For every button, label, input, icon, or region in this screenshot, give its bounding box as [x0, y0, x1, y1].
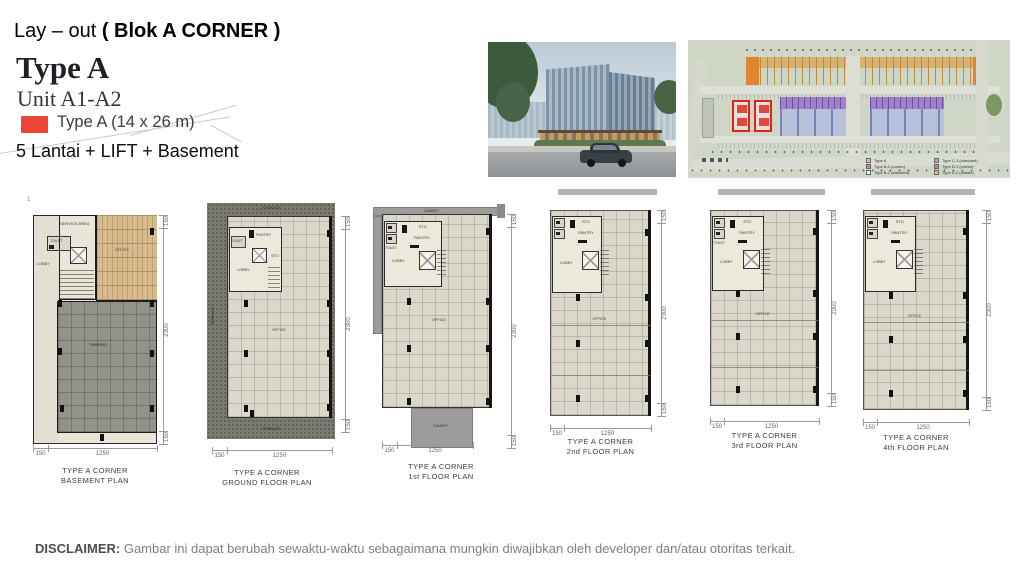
- dimension-label: 150: [661, 202, 669, 230]
- site-legend-chip: [934, 158, 939, 163]
- dimension-label: 150: [661, 395, 669, 423]
- column-marker: [963, 336, 967, 343]
- site-legend-label: Type C-1 (standard): [942, 158, 978, 163]
- column-marker: [244, 405, 248, 412]
- dimension-tick: [651, 425, 652, 432]
- column-marker: [250, 410, 254, 417]
- site-legend-chip: [866, 158, 871, 163]
- column-marker: [327, 350, 331, 357]
- dimension-label: 150: [511, 427, 519, 455]
- dimension-label: 150: [511, 206, 519, 234]
- tree: [654, 80, 676, 114]
- site-legend-label: Type B-2 (standard): [874, 170, 909, 175]
- floor-band-line: [550, 325, 651, 326]
- room-label-pantry: PANTRY: [892, 230, 908, 235]
- floor-plan-caption: TYPE A CORNER 2nd FLOOR PLAN: [539, 437, 663, 457]
- floor-plan-caption: TYPE A CORNER 4th FLOOR PLAN: [854, 433, 978, 453]
- canopy-band-left: [373, 216, 382, 334]
- column-marker: [327, 404, 331, 411]
- site-legend-chip: [934, 164, 939, 169]
- room-label-toilet: TOILET: [385, 246, 397, 250]
- dimension-label: 150: [210, 452, 230, 460]
- column-marker: [60, 405, 64, 412]
- page-artifact-mark: 1: [27, 197, 30, 203]
- dimension-tick: [332, 447, 333, 454]
- dimension-label: 150: [860, 424, 880, 432]
- lift-shaft-icon: [896, 250, 913, 269]
- plan-right-wall: [329, 216, 332, 418]
- column-marker: [150, 350, 154, 357]
- toilet-fixture-icon: [556, 232, 560, 235]
- disclaimer-text: Gambar ini dapat berubah sewaktu-waktu s…: [120, 541, 795, 556]
- unit-subheading: Unit A1-A2: [17, 86, 122, 112]
- lift-shaft-icon: [419, 251, 436, 270]
- wall-segment: [738, 240, 747, 243]
- room-label-office: OFFICE: [115, 248, 129, 252]
- room-label-lobby: LOBBY: [720, 260, 733, 264]
- dimension-tick: [819, 418, 820, 425]
- column-marker: [645, 395, 649, 402]
- toilet-fixture-icon: [869, 221, 873, 224]
- wall-segment: [410, 245, 419, 248]
- wall-segment: [402, 225, 407, 233]
- type-a-color-swatch: [21, 116, 48, 133]
- room-label-lobby: LOBBY: [560, 261, 573, 265]
- sketch-line: [210, 125, 242, 143]
- spec-line: 5 Lantai + LIFT + Basement: [16, 141, 239, 162]
- room-label-toilet: TOILET: [713, 241, 725, 245]
- building-tower-front: [546, 64, 610, 140]
- highlighted-unit-mark: [759, 118, 769, 126]
- lift-shaft-icon: [582, 251, 599, 270]
- column-marker: [963, 390, 967, 397]
- stairs-area: [914, 246, 923, 274]
- room-label-pantry: PANTRY: [256, 233, 271, 237]
- column-marker: [407, 345, 411, 352]
- room-label-sto: STO: [896, 219, 904, 224]
- room-label-office: OFFICE: [908, 314, 922, 318]
- column-marker: [813, 386, 817, 393]
- dimension-tick: [157, 445, 158, 452]
- site-legend-label: Type A: [874, 158, 886, 163]
- toilet-fixture-icon: [716, 232, 720, 235]
- plan-right-wall: [648, 210, 651, 416]
- floor-band-line: [710, 367, 819, 368]
- dimension-label: 150: [986, 202, 994, 230]
- toilet-fixture-icon: [49, 245, 54, 249]
- room-label-toilet: TOILET: [231, 239, 243, 243]
- room-label-terrace-bottom: TERRACE: [262, 427, 280, 431]
- building-tower-right: [609, 72, 655, 138]
- column-marker: [889, 390, 893, 397]
- dimension-label: 150: [163, 207, 171, 235]
- column-marker: [244, 350, 248, 357]
- disclaimer-label: DISCLAIMER:: [35, 541, 120, 556]
- tree-row: [743, 46, 989, 56]
- column-marker: [736, 333, 740, 340]
- dimension-label: 150: [31, 450, 51, 458]
- building-rendering-image: [488, 42, 676, 177]
- column-marker: [407, 298, 411, 305]
- canopy-roof-line: [558, 189, 657, 195]
- column-marker: [889, 292, 893, 299]
- stairs-area: [761, 246, 770, 274]
- canopy-end-cap: [497, 204, 505, 218]
- wall-segment: [883, 220, 888, 228]
- highlighted-unit-mark: [737, 105, 747, 113]
- dimension-label: 1250: [415, 447, 455, 455]
- room-label-office: OFFICE: [432, 318, 446, 322]
- column-marker: [327, 300, 331, 307]
- page-title-regular: Lay – out: [14, 20, 102, 42]
- column-marker: [58, 300, 62, 307]
- column-marker: [407, 398, 411, 405]
- dimension-label: 150: [345, 208, 353, 236]
- room-label-sto: STO: [271, 254, 279, 258]
- site-legend-label: Type B-1 (corner): [874, 164, 905, 169]
- column-marker: [576, 294, 580, 301]
- site-legend-chip: [934, 170, 939, 175]
- room-label-lobby: LOBBY: [237, 268, 250, 272]
- stairs-area: [60, 268, 94, 299]
- scale-mark: [702, 158, 728, 162]
- office-area: [96, 215, 157, 301]
- room-label-office: OFFICE: [592, 317, 606, 321]
- room-label-lobby: LOBBY: [392, 259, 405, 263]
- toilet-fixture-icon: [388, 226, 392, 229]
- dimension-line: [863, 422, 969, 423]
- dimension-line: [33, 448, 157, 449]
- dimension-line: [710, 421, 819, 422]
- stairs-area: [268, 266, 280, 288]
- column-marker: [58, 348, 62, 355]
- wall-segment: [249, 230, 254, 238]
- column-marker: [100, 434, 104, 441]
- column-marker: [576, 340, 580, 347]
- disclaimer: DISCLAIMER: Gambar ini dapat berubah sew…: [35, 541, 795, 556]
- site-legend-chip: [866, 164, 871, 169]
- toilet-fixture-icon: [388, 237, 392, 240]
- dimension-line: [550, 428, 651, 429]
- tree: [496, 82, 530, 122]
- cluster-blue-body: [780, 109, 846, 136]
- column-marker: [150, 228, 154, 235]
- plan-right-wall: [966, 210, 969, 410]
- site-outbuilding: [702, 98, 714, 138]
- wall-segment: [578, 240, 587, 243]
- canopy-roof-line: [871, 189, 975, 195]
- column-marker: [150, 405, 154, 412]
- type-a-swatch-label: Type A (14 x 26 m): [57, 113, 195, 132]
- floor-plan-caption: TYPE A CORNER GROUND FLOOR PLAN: [205, 468, 329, 488]
- dimension-label: 1250: [260, 452, 300, 460]
- parking-area: [57, 301, 157, 433]
- room-label-sto: STO: [419, 224, 427, 229]
- site-legend-chip: [866, 170, 871, 175]
- column-marker: [327, 230, 331, 237]
- column-marker: [486, 228, 490, 235]
- cluster-purple-row: [870, 97, 944, 109]
- room-label-pantry: PANTRY: [739, 230, 755, 235]
- floor-plan-caption: TYPE A CORNER 1st FLOOR PLAN: [379, 462, 503, 482]
- room-label-parking: PARKING: [90, 343, 107, 347]
- floor-band-line: [550, 375, 651, 376]
- column-marker: [813, 333, 817, 340]
- column-marker: [645, 294, 649, 301]
- dimension-label: 150: [163, 423, 171, 451]
- column-marker: [736, 386, 740, 393]
- column-marker: [645, 340, 649, 347]
- canopy-band-bottom: [411, 408, 473, 448]
- dimension-label: 150: [380, 447, 400, 455]
- dimension-tick: [969, 419, 970, 426]
- column-marker: [486, 398, 490, 405]
- dimension-label: 1250: [903, 424, 943, 432]
- dimension-line: [212, 450, 332, 451]
- floor-band-line: [863, 322, 969, 323]
- page-title: Lay – out ( Blok A CORNER ): [14, 20, 280, 43]
- car-wheel: [618, 159, 626, 167]
- dimension-label: 150: [986, 389, 994, 417]
- dimension-label: 2300: [831, 294, 839, 322]
- car-wheel: [587, 159, 595, 167]
- cluster-blue-body: [870, 109, 944, 136]
- dimension-label: 150: [707, 423, 727, 431]
- column-marker: [244, 300, 248, 307]
- roundabout: [984, 92, 1004, 118]
- column-marker: [813, 290, 817, 297]
- lift-shaft-icon: [743, 250, 760, 269]
- lift-shaft-icon: [70, 247, 87, 264]
- stairs-area: [600, 247, 609, 275]
- site-legend-label: Type D-1 (corner): [942, 164, 973, 169]
- column-marker: [576, 395, 580, 402]
- floor-band-line: [710, 320, 819, 321]
- room-label-lobby: LOBBY: [873, 260, 886, 264]
- wall-segment: [891, 240, 900, 243]
- column-marker: [645, 229, 649, 236]
- floor-band-line: [863, 370, 969, 371]
- building-canopy: [538, 130, 662, 133]
- dimension-label: 150: [831, 202, 839, 230]
- column-marker: [486, 345, 490, 352]
- shophouse-endcap: [746, 57, 759, 85]
- room-label-lobby: LOBBY: [37, 262, 50, 266]
- lift-shaft-icon: [252, 248, 267, 263]
- room-label-canopy-bottom: CANOPY: [433, 424, 448, 428]
- road: [700, 136, 1000, 143]
- column-marker: [813, 228, 817, 235]
- column-marker: [150, 300, 154, 307]
- dimension-label: 150: [345, 411, 353, 439]
- toilet-fixture-icon: [556, 221, 560, 224]
- dimension-line: [382, 445, 473, 446]
- car-window: [593, 145, 617, 150]
- wall-segment: [730, 220, 735, 228]
- tree-row: [708, 148, 988, 156]
- dimension-label: 2300: [511, 317, 519, 345]
- type-heading: Type A: [16, 50, 109, 86]
- dimension-label: 2300: [345, 310, 353, 338]
- dimension-label: 2300: [163, 316, 171, 344]
- highlighted-unit-mark: [737, 118, 747, 126]
- toilet-fixture-icon: [716, 221, 720, 224]
- room-label-pantry: PANTRY: [414, 235, 430, 240]
- dimension-label: 1250: [83, 450, 123, 458]
- room-label-sto: STO: [582, 219, 590, 224]
- room-label-office: OFFICE: [272, 328, 286, 332]
- canopy-roof-line: [718, 189, 825, 195]
- site-plan-image: Type AType B-1 (corner)Type B-2 (standar…: [688, 40, 1010, 178]
- dimension-tick: [473, 442, 474, 449]
- dimension-label: 2300: [661, 299, 669, 327]
- column-marker: [889, 336, 893, 343]
- room-label-pantry: PANTRY: [578, 230, 594, 235]
- plan-right-wall: [489, 214, 492, 408]
- room-label-office: OFFICE: [756, 312, 770, 316]
- plan-right-wall: [816, 210, 819, 406]
- column-marker: [486, 298, 490, 305]
- room-label-canopy-top: CANOPY: [424, 209, 439, 213]
- column-marker: [963, 292, 967, 299]
- wall-segment: [570, 220, 575, 228]
- dimension-label: 1250: [752, 423, 792, 431]
- floor-plan-caption: TYPE A CORNER 3rd FLOOR PLAN: [703, 431, 827, 451]
- column-marker: [736, 290, 740, 297]
- highlighted-unit-mark: [759, 105, 769, 113]
- dimension-label: 150: [831, 385, 839, 413]
- toilet-fixture-icon: [869, 232, 873, 235]
- room-label-terrace-top: TERRACE: [262, 206, 280, 210]
- room-label-sto: STO: [743, 219, 751, 224]
- room-label-terrace-left: TERRACE: [211, 295, 215, 325]
- shophouse-row: [746, 57, 986, 85]
- column-marker: [963, 228, 967, 235]
- stairs-area: [437, 247, 446, 275]
- dimension-label: 2300: [986, 296, 994, 324]
- site-legend-label: Type D-2 (middle): [942, 170, 974, 175]
- cluster-purple-row: [780, 97, 846, 109]
- page-title-bold: ( Blok A CORNER ): [102, 20, 281, 42]
- floor-plan-caption: TYPE A CORNER BASEMENT PLAN: [33, 466, 157, 486]
